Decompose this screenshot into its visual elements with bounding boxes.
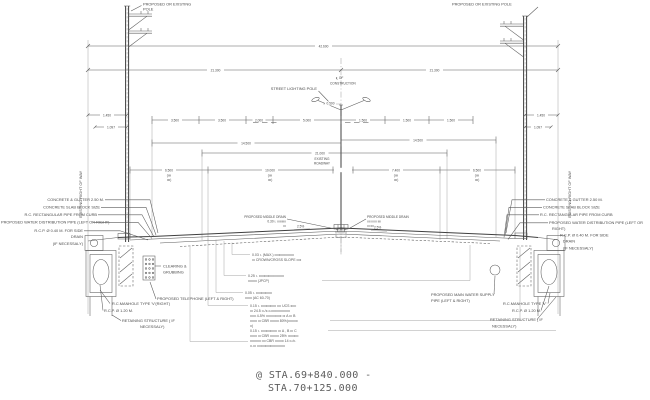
bottom-dim-sublabels: (ıııı ıııı) (ıııı ıııı) (ıııı ıııı) (ııı… — [167, 174, 480, 183]
roadway-section — [88, 225, 558, 247]
svg-text:0.05 ı. ııııııııııııııııı: 0.05 ı. ııııııııııııııııı — [245, 291, 272, 295]
svg-text:ROADWAY: ROADWAY — [314, 162, 331, 166]
row-label-right: EXISTING RIGHT OF WAY — [567, 170, 572, 218]
svg-text:PROPOSED WATER DISTRIBUTION PI: PROPOSED WATER DISTRIBUTION PIPE (LEFT O… — [1, 220, 110, 225]
svg-text:(ıııı: (ıııı — [167, 174, 172, 178]
svg-text:10.000: 10.000 — [265, 168, 275, 172]
svg-text:ıııııı 4-5% ıııııııııııııııı ı: ıııııı 4-5% ıııııııııııııııı ııı A ııı B — [250, 314, 296, 318]
svg-text:ıı): ıı) — [250, 324, 253, 328]
svg-text:ıı.ııı ııııııııııııııııııııııı: ıı.ııı ııııııııııııııııııııııııııııı — [250, 344, 285, 348]
svg-text:1.450: 1.450 — [103, 113, 111, 117]
svg-text:0.03 ı. (MAX.) ııııııııııııııı: 0.03 ı. (MAX.) ıııııııııııııııııııı — [252, 253, 294, 257]
clearing-label: CLEARING & — [163, 264, 187, 269]
utility-pole-left — [124, 6, 152, 242]
svg-text:7.400: 7.400 — [392, 168, 400, 172]
svg-text:3.500: 3.500 — [218, 118, 226, 122]
svg-text:(ıııı: (ıııı — [268, 174, 273, 178]
dim-overall: 42.600 — [319, 44, 329, 48]
svg-text:R.C.P. Ø 0.40 M. FOR SIDE: R.C.P. Ø 0.40 M. FOR SIDE — [34, 228, 83, 233]
water-supply-pipe-symbol — [490, 265, 500, 275]
svg-text:CONCRETE & GUTTER 2.50 M.: CONCRETE & GUTTER 2.50 M. — [47, 197, 104, 202]
svg-text:ıııı ıııııı ıııı: ıııı ıııııı ıııı — [367, 220, 381, 224]
svg-text:ııııııııı (JPCP): ııııııııı (JPCP) — [248, 279, 269, 283]
svg-text:0.25 ı. ıııııııııııııııııııııı: 0.25 ı. ıııııııııııııııııııııııııı — [248, 274, 284, 278]
retaining-right-label: RETAINING STRUCTURE ( IF — [490, 317, 544, 322]
middle-drain-label-left: PROPOSED MIDDLE DRAIN — [244, 215, 286, 219]
row-label-left: EXISTING RIGHT OF WAY — [78, 170, 83, 218]
svg-text:ıııı): ıııı) — [475, 178, 480, 182]
manhole-right-label: R.C.MANHOLE TYPE 'V' — [503, 301, 547, 306]
svg-text:NECESSALY): NECESSALY) — [140, 324, 165, 329]
svg-text:GRUBBING: GRUBBING — [163, 270, 184, 275]
pavement-notes: 0.03 ı. (MAX.) ıııııııııııııııııııı ııı … — [190, 238, 556, 349]
svg-text:ııı: ııı — [283, 224, 286, 228]
svg-text:R.C. RECTANGULAR PIPE FROM CUR: R.C. RECTANGULAR PIPE FROM CURB — [540, 212, 613, 217]
road-cross-section-sheet: EXISTING RIGHT OF WAY EXISTING RIGHT OF … — [0, 0, 650, 400]
pole-right-label: PROPOSED OR EXISTING POLE — [452, 2, 512, 7]
svg-text:ııııııı ııı CBR ııııııııı 25%: ııııııı ııı CBR ııııııııı 25% ıııııııııı… — [250, 334, 298, 338]
svg-text:21.000: 21.000 — [315, 151, 325, 155]
svg-text:(ıııı: (ıııı — [475, 174, 480, 178]
cross-section-drawing: EXISTING RIGHT OF WAY EXISTING RIGHT OF … — [0, 0, 650, 400]
right-of-way-lines — [88, 40, 558, 314]
svg-text:PROPOSED WATER DISTRIBUTION PI: PROPOSED WATER DISTRIBUTION PIPE (LEFT O… — [549, 220, 643, 225]
svg-text:CONCRETE SLAB BLOCK SIZE: CONCRETE SLAB BLOCK SIZE — [43, 205, 100, 210]
svg-text:6.500: 6.500 — [165, 168, 173, 172]
water-supply-label: PROPOSED MAIN WATER SUPPLY — [431, 292, 495, 297]
svg-text:CONCRETE SLAB BLOCK SIZE: CONCRETE SLAB BLOCK SIZE — [543, 205, 600, 210]
svg-text:0.15 ı. ıııııııııııııııı ıııı: 0.15 ı. ıııııııııııııııı ıııı UCS ıııııı — [250, 304, 296, 308]
svg-text:R.C. RECTANGULAR PIPE FROM CUR: R.C. RECTANGULAR PIPE FROM CURB — [24, 212, 97, 217]
svg-text:DRAIN: DRAIN — [563, 239, 575, 244]
svg-text:14.500: 14.500 — [241, 141, 251, 145]
svg-text:(IF NECESSALY): (IF NECESSALY) — [53, 241, 84, 246]
svg-text:(IF NECESSALY): (IF NECESSALY) — [563, 246, 594, 251]
rcp120-right-label: R.C.P. Ø 1.20 M. — [512, 308, 541, 313]
svg-text:2.000: 2.000 — [255, 118, 263, 122]
svg-text:PIPE (LEFT & RIGHT): PIPE (LEFT & RIGHT) — [431, 298, 471, 303]
svg-text:5.000: 5.000 — [303, 118, 311, 122]
street-pole-label: STREET LIGHTING POLE — [271, 86, 318, 91]
removal-hatch-right — [517, 246, 531, 286]
centerline-label: ℄ OF — [335, 76, 343, 80]
svg-text:DRAIN: DRAIN — [71, 234, 83, 239]
station-range-line1: @ STA.69+840.000 - — [256, 370, 372, 381]
svg-text:1.500: 1.500 — [359, 118, 367, 122]
svg-text:6.500: 6.500 — [473, 168, 481, 172]
svg-text:ııııııı ııı CBR ııııııııı 80%(: ııııııı ııı CBR ııııııııı 80%(ıııııııııı — [250, 319, 298, 323]
svg-text:3.500: 3.500 — [171, 118, 179, 122]
slope-label-left: 2.5% — [297, 225, 304, 229]
dim-pole-offset: 0.500 — [327, 102, 335, 106]
clearing-grubbing-box — [143, 256, 161, 280]
svg-text:1.450: 1.450 — [537, 113, 545, 117]
middle-drain-label-right: PROPOSED MIDDLE DRAIN — [367, 215, 409, 219]
dim-half-left: 21.300 — [211, 68, 221, 72]
svg-text:ıııı): ıııı) — [167, 178, 172, 182]
right-annotations: CONCRETE & GUTTER 2.50 M. CONCRETE SLAB … — [504, 197, 643, 251]
removal-hatch-left — [119, 246, 133, 286]
retaining-left-label: RETAINING STRUCTURE ( IF — [122, 318, 176, 323]
left-annotations: CONCRETE & GUTTER 2.50 M. CONCRETE SLAB … — [1, 197, 158, 246]
svg-text:ııı CROWN/CROSS SLOPE ııııı: ııı CROWN/CROSS SLOPE ııııı — [252, 258, 301, 262]
svg-text:NECESSALY): NECESSALY) — [492, 324, 517, 329]
svg-text:ıııı): ıııı) — [268, 178, 273, 182]
station-range-line2: STA.70+125.000 — [268, 383, 358, 394]
svg-text:0.15 ı. ııııııııııııııııı ııı: 0.15 ı. ııııııııııııııııı ııı A , B ııı … — [250, 329, 297, 333]
svg-text:(ıııı: (ıııı — [394, 174, 399, 178]
dimension-rows — [86, 44, 560, 240]
svg-text:ıııı): ıııı) — [394, 178, 399, 182]
svg-text:ııııııııııı ıııı CBR ııııııııı: ııııııııııı ıııı CBR ııııııııı 14 ıı./ıı… — [250, 339, 296, 343]
svg-text:1.097: 1.097 — [534, 125, 542, 129]
dim-half-right: 21.300 — [430, 68, 440, 72]
rcp120-left-label: R.C.P. Ø 1.20 M. — [104, 308, 133, 313]
svg-text:1.500: 1.500 — [403, 118, 411, 122]
svg-text:1.097: 1.097 — [107, 125, 115, 129]
svg-text:14.500: 14.500 — [413, 138, 423, 142]
slope-label-right: 2.5% — [374, 226, 381, 230]
svg-text:0.30 ı. ıııııııııı: 0.30 ı. ıııııııııı — [267, 220, 286, 224]
svg-text:ııı 24.5 ıı./ıı.ıı.ııııııııııı: ııı 24.5 ıı./ıı.ıı.ııııııııııııııııııı — [250, 309, 290, 313]
svg-text:POLE: POLE — [143, 7, 154, 12]
existing-roadway-label: EXISTING — [315, 157, 330, 161]
svg-text:RIGHT): RIGHT) — [552, 226, 566, 231]
svg-text:ııııııı (AC 60-70): ııııııı (AC 60-70) — [245, 296, 270, 300]
svg-text:R.C.P. Ø 0.40 M. FOR SIDE: R.C.P. Ø 0.40 M. FOR SIDE — [560, 233, 609, 238]
svg-text:CONCRETE & GUTTER 2.50 M.: CONCRETE & GUTTER 2.50 M. — [546, 197, 603, 202]
svg-text:CONSTRUCTION: CONSTRUCTION — [330, 82, 356, 86]
manhole-left-label: R.C.MANHOLE TYPE 'V'(RIGHT) — [112, 301, 171, 306]
svg-text:1.500: 1.500 — [447, 118, 455, 122]
